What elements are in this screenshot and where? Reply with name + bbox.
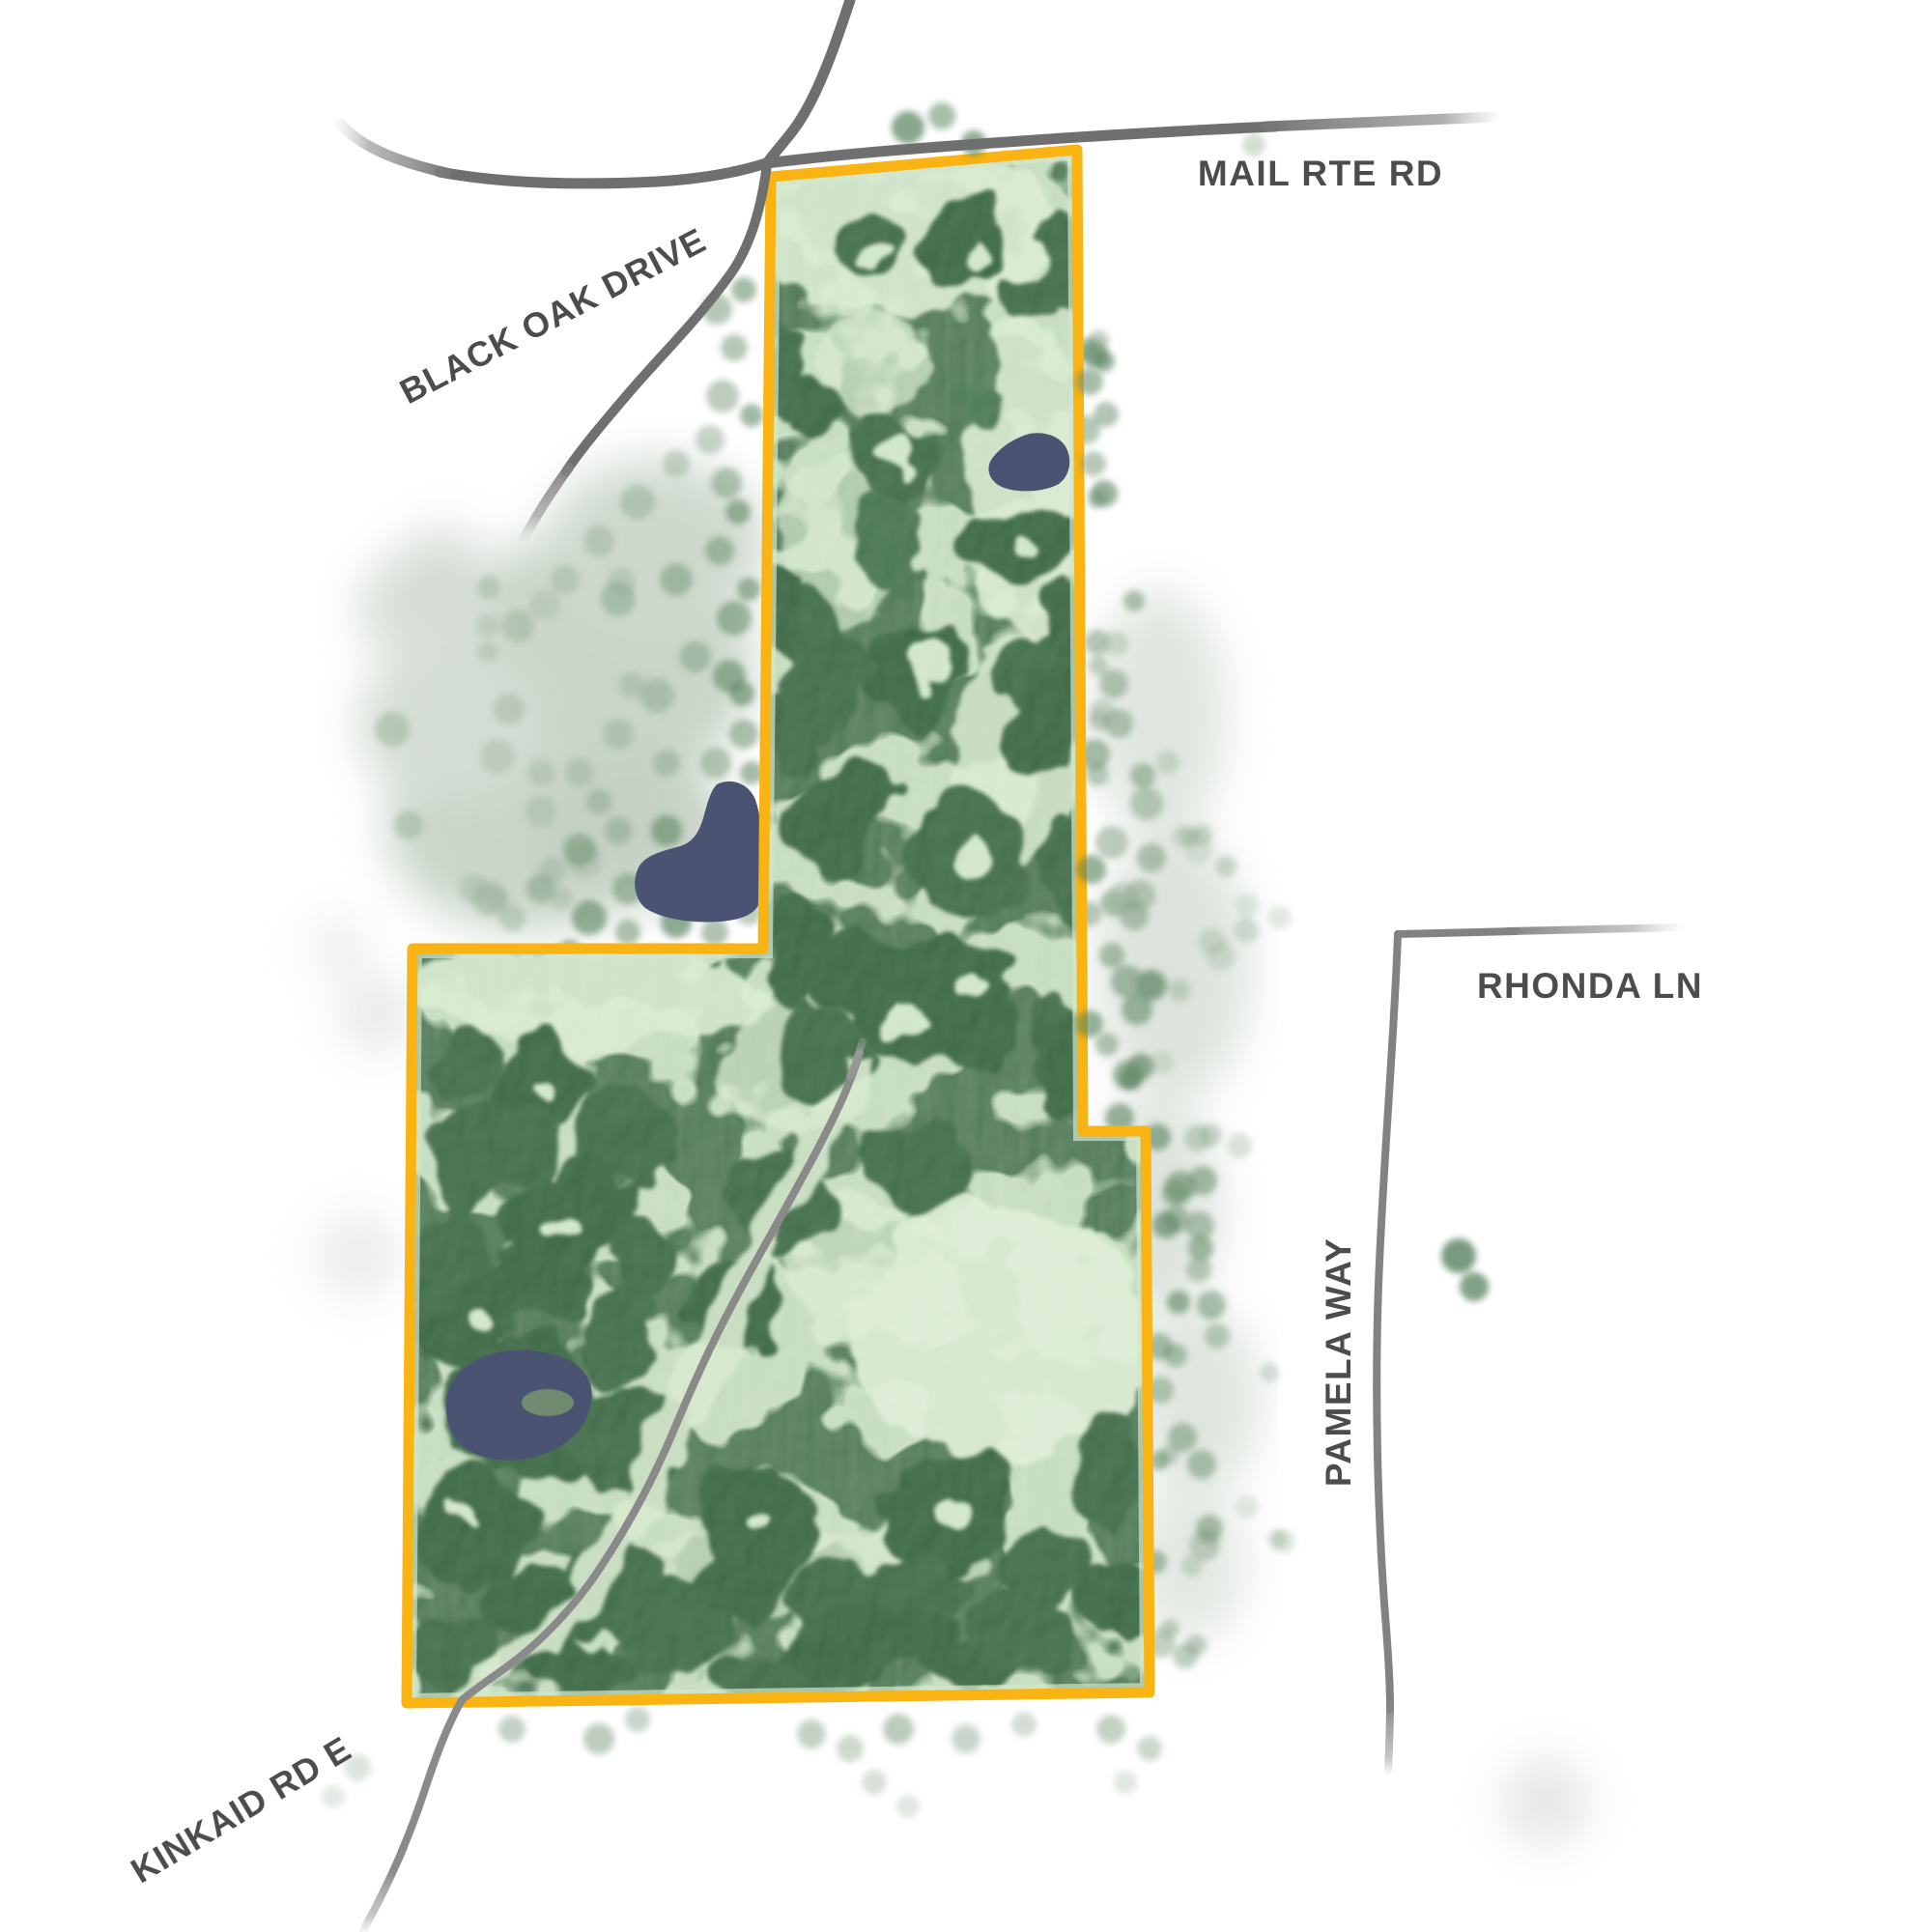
svg-text:RHONDA LN: RHONDA LN — [1477, 966, 1703, 1006]
svg-text:MAIL RTE RD: MAIL RTE RD — [1198, 154, 1443, 193]
svg-text:PAMELA WAY: PAMELA WAY — [1319, 1237, 1358, 1487]
